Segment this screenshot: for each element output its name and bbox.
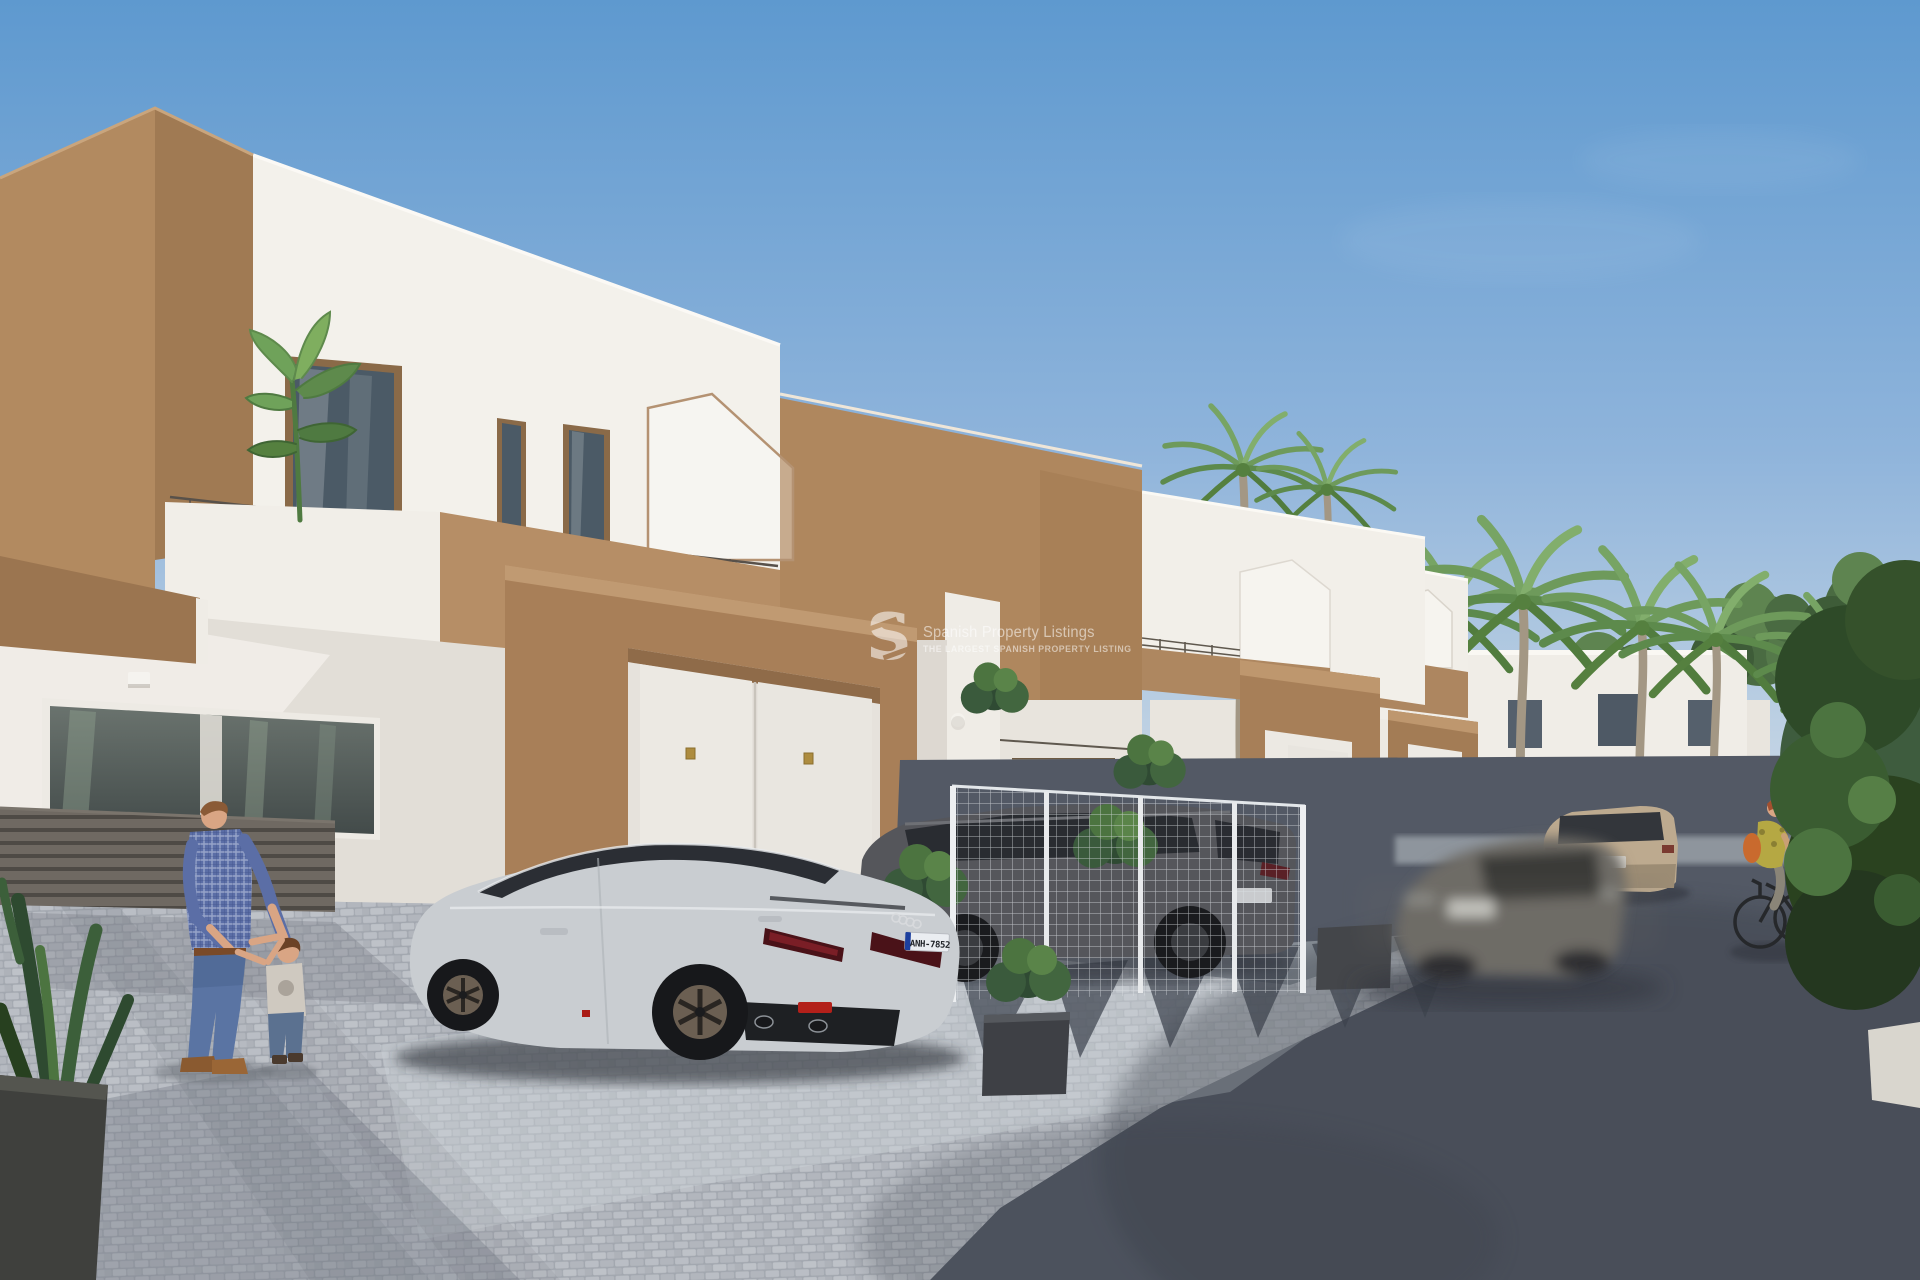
- street-scene: ANH-7852: [0, 0, 1920, 1280]
- child-jeans: [268, 1012, 304, 1058]
- man-shoe: [212, 1058, 248, 1074]
- slatted-gate: [0, 808, 335, 912]
- license-plate: ANH-7852: [905, 932, 951, 952]
- wall-lamp: [128, 672, 150, 688]
- house-number-plaque: [804, 753, 813, 764]
- render-canvas: ANH-7852 S Spanish Property Listings THE…: [0, 0, 1920, 1280]
- plate-number: ANH-7852: [910, 939, 951, 951]
- house-number-plaque: [686, 748, 695, 759]
- orange-bag: [1743, 833, 1761, 863]
